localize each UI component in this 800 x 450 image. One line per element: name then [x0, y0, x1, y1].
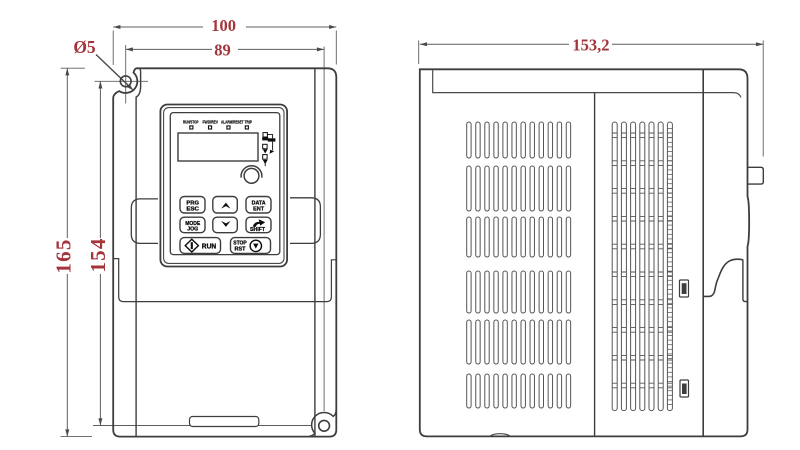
svg-text:165: 165: [51, 238, 75, 273]
svg-text:FWD/REV: FWD/REV: [203, 119, 219, 124]
svg-text:154: 154: [86, 237, 110, 272]
svg-text:Ø5: Ø5: [73, 37, 96, 57]
svg-text:RUN/STOP: RUN/STOP: [183, 119, 199, 124]
svg-text:SHIFT: SHIFT: [250, 227, 265, 233]
svg-text:RST: RST: [235, 246, 247, 252]
svg-text:ENT: ENT: [253, 206, 265, 212]
svg-text:JOG: JOG: [187, 227, 198, 233]
svg-text:ESC: ESC: [186, 206, 199, 212]
svg-text:100: 100: [211, 16, 236, 35]
svg-text:153,2: 153,2: [572, 35, 609, 54]
svg-text:89: 89: [214, 41, 231, 60]
svg-text:TRIP: TRIP: [245, 119, 253, 124]
svg-text:RUN: RUN: [202, 244, 217, 251]
svg-text:ALARM/RESET: ALARM/RESET: [221, 119, 244, 124]
